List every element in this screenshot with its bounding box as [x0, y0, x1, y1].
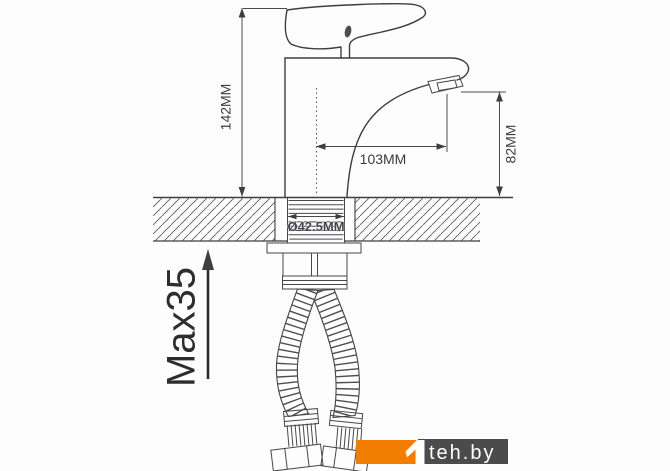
aerator-outer	[428, 76, 463, 94]
max-thickness-annotation: Max35	[160, 249, 214, 387]
handle-lever	[287, 4, 425, 58]
fitting-left	[271, 409, 323, 471]
mounting-hardware	[267, 243, 361, 289]
dim-height-label: 142MM	[218, 84, 234, 131]
washer-stack	[283, 276, 348, 289]
mounting-nut	[283, 253, 347, 276]
dimension-height: 142MM	[218, 8, 287, 197]
spout-underside	[347, 85, 429, 197]
counter-hatch-right	[355, 198, 480, 240]
body-top	[285, 58, 469, 80]
hose-left	[276, 289, 318, 417]
technical-drawing-canvas: 142MM 103MM 82MM	[0, 0, 670, 471]
dim-spout-height-label: 82MM	[503, 125, 519, 164]
aerator-inner	[437, 80, 457, 91]
faucet-dimension-drawing: 142MM 103MM 82MM	[0, 0, 670, 471]
hole-diameter-label: Ø42.5MM	[287, 219, 344, 234]
hose-right	[311, 290, 360, 418]
max-thickness-arrowhead	[202, 249, 214, 270]
max-thickness-label: Max35	[160, 267, 204, 387]
dimension-hole-diameter: Ø42.5MM	[287, 214, 344, 234]
counter-hatch-left	[153, 198, 275, 240]
dim-reach-label: 103MM	[360, 151, 407, 167]
brand-text: teh.by	[429, 442, 495, 464]
base-flange	[267, 243, 361, 253]
dimension-spout-height: 82MM	[461, 92, 519, 196]
faucet-outline	[285, 4, 469, 197]
handle-indicator-dot	[344, 25, 353, 38]
dimension-spout-reach: 103MM	[316, 94, 447, 167]
handle-body	[285, 10, 341, 58]
watermark-logo: teh.by	[356, 439, 508, 464]
